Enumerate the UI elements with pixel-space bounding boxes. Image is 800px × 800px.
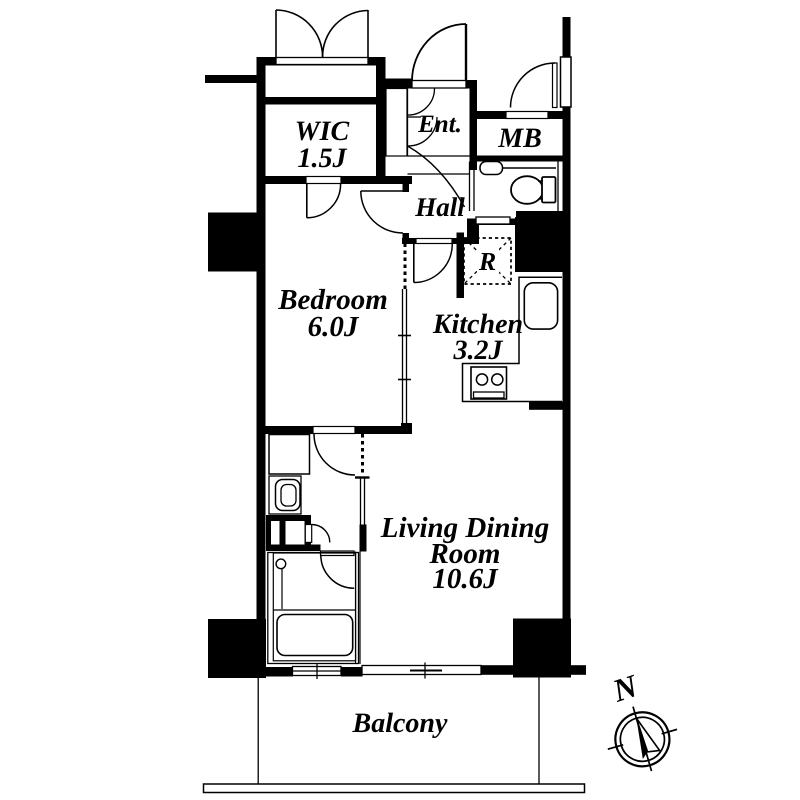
svg-text:MB: MB <box>497 123 542 154</box>
svg-text:Hall: Hall <box>414 192 465 222</box>
svg-text:R: R <box>478 247 496 276</box>
svg-text:6.0J: 6.0J <box>308 311 360 343</box>
svg-text:Ent.: Ent. <box>417 111 462 138</box>
svg-text:Balcony: Balcony <box>352 708 448 739</box>
svg-text:1.5J: 1.5J <box>298 143 348 174</box>
svg-text:10.6J: 10.6J <box>432 563 499 595</box>
svg-text:3.2J: 3.2J <box>453 335 504 366</box>
